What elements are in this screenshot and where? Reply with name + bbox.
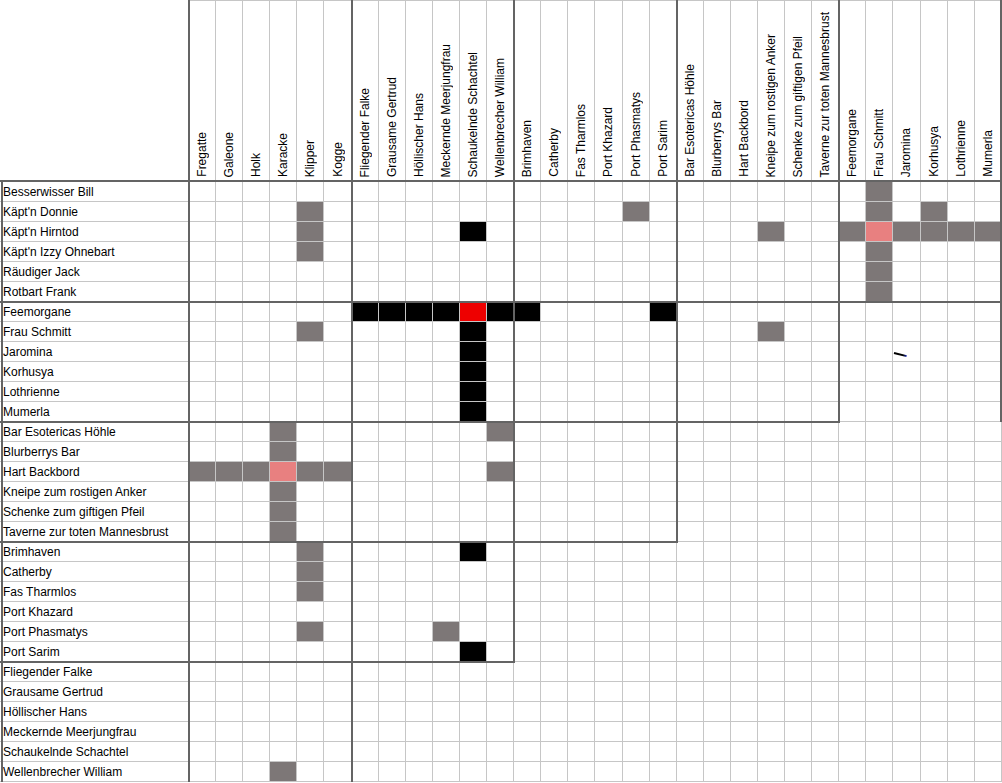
grid-cell[interactable] xyxy=(243,262,270,282)
grid-cell[interactable] xyxy=(352,322,379,342)
grid-cell[interactable] xyxy=(975,302,1002,322)
grid-cell[interactable] xyxy=(839,302,866,322)
grid-cell[interactable] xyxy=(270,662,297,682)
grid-cell[interactable] xyxy=(189,502,216,522)
grid-cell[interactable] xyxy=(921,542,948,562)
grid-cell[interactable] xyxy=(514,182,541,202)
grid-cell[interactable] xyxy=(866,422,893,442)
grid-cell[interactable] xyxy=(379,582,406,602)
grid-cell[interactable] xyxy=(677,502,704,522)
grid-cell[interactable] xyxy=(433,242,460,262)
grid-cell[interactable] xyxy=(406,302,433,322)
grid-cell[interactable] xyxy=(324,302,351,322)
grid-cell[interactable] xyxy=(487,482,514,502)
grid-cell[interactable] xyxy=(406,622,433,642)
grid-cell[interactable] xyxy=(921,182,948,202)
grid-cell[interactable] xyxy=(975,382,1002,402)
grid-cell[interactable] xyxy=(785,522,812,542)
grid-cell[interactable] xyxy=(270,402,297,422)
grid-cell[interactable] xyxy=(487,602,514,622)
grid-cell[interactable] xyxy=(866,222,893,242)
grid-cell[interactable] xyxy=(921,502,948,522)
grid-cell[interactable] xyxy=(677,482,704,502)
grid-cell[interactable] xyxy=(216,402,243,422)
grid-cell[interactable] xyxy=(189,442,216,462)
grid-cell[interactable] xyxy=(324,522,351,542)
grid-cell[interactable] xyxy=(379,182,406,202)
grid-cell[interactable] xyxy=(731,382,758,402)
grid-cell[interactable] xyxy=(487,302,514,322)
grid-cell[interactable] xyxy=(866,382,893,402)
grid-cell[interactable] xyxy=(650,262,677,282)
grid-cell[interactable] xyxy=(921,462,948,482)
grid-cell[interactable] xyxy=(677,602,704,622)
grid-cell[interactable] xyxy=(216,502,243,522)
grid-cell[interactable] xyxy=(487,362,514,382)
grid-cell[interactable] xyxy=(514,702,541,722)
grid-cell[interactable] xyxy=(921,762,948,782)
grid-cell[interactable] xyxy=(243,642,270,662)
grid-cell[interactable] xyxy=(514,582,541,602)
grid-cell[interactable] xyxy=(541,582,568,602)
grid-cell[interactable] xyxy=(243,242,270,262)
grid-cell[interactable] xyxy=(677,322,704,342)
grid-cell[interactable] xyxy=(812,702,839,722)
grid-cell[interactable] xyxy=(433,262,460,282)
grid-cell[interactable] xyxy=(866,202,893,222)
grid-cell[interactable] xyxy=(433,542,460,562)
grid-cell[interactable] xyxy=(948,582,975,602)
grid-cell[interactable] xyxy=(948,602,975,622)
grid-cell[interactable] xyxy=(975,282,1002,302)
grid-cell[interactable] xyxy=(297,342,324,362)
grid-cell[interactable] xyxy=(948,362,975,382)
grid-cell[interactable] xyxy=(893,262,920,282)
grid-cell[interactable] xyxy=(893,482,920,502)
grid-cell[interactable] xyxy=(270,262,297,282)
grid-cell[interactable] xyxy=(758,442,785,462)
grid-cell[interactable] xyxy=(731,762,758,782)
grid-cell[interactable] xyxy=(189,242,216,262)
grid-cell[interactable] xyxy=(623,282,650,302)
grid-cell[interactable] xyxy=(514,282,541,302)
grid-cell[interactable] xyxy=(758,702,785,722)
grid-cell[interactable] xyxy=(379,502,406,522)
grid-cell[interactable] xyxy=(623,662,650,682)
grid-cell[interactable] xyxy=(595,362,622,382)
grid-cell[interactable] xyxy=(704,582,731,602)
grid-cell[interactable] xyxy=(270,582,297,602)
grid-cell[interactable] xyxy=(595,222,622,242)
grid-cell[interactable] xyxy=(839,402,866,422)
grid-cell[interactable] xyxy=(677,682,704,702)
grid-cell[interactable] xyxy=(324,442,351,462)
grid-cell[interactable] xyxy=(352,602,379,622)
grid-cell[interactable] xyxy=(650,682,677,702)
grid-cell[interactable] xyxy=(541,482,568,502)
grid-cell[interactable] xyxy=(541,422,568,442)
grid-cell[interactable] xyxy=(623,202,650,222)
grid-cell[interactable] xyxy=(406,542,433,562)
grid-cell[interactable] xyxy=(812,562,839,582)
grid-cell[interactable] xyxy=(623,442,650,462)
grid-cell[interactable] xyxy=(487,762,514,782)
grid-cell[interactable] xyxy=(324,182,351,202)
grid-cell[interactable] xyxy=(839,242,866,262)
grid-cell[interactable] xyxy=(189,682,216,702)
grid-cell[interactable] xyxy=(650,342,677,362)
grid-cell[interactable] xyxy=(921,242,948,262)
grid-cell[interactable] xyxy=(650,442,677,462)
grid-cell[interactable] xyxy=(406,342,433,362)
grid-cell[interactable] xyxy=(975,702,1002,722)
grid-cell[interactable] xyxy=(677,302,704,322)
grid-cell[interactable] xyxy=(243,482,270,502)
grid-cell[interactable] xyxy=(677,242,704,262)
grid-cell[interactable] xyxy=(893,542,920,562)
grid-cell[interactable] xyxy=(487,262,514,282)
grid-cell[interactable] xyxy=(677,562,704,582)
grid-cell[interactable] xyxy=(677,362,704,382)
grid-cell[interactable] xyxy=(379,742,406,762)
grid-cell[interactable] xyxy=(731,562,758,582)
grid-cell[interactable] xyxy=(595,382,622,402)
grid-cell[interactable] xyxy=(839,462,866,482)
grid-cell[interactable] xyxy=(623,642,650,662)
grid-cell[interactable] xyxy=(758,222,785,242)
grid-cell[interactable] xyxy=(839,422,866,442)
grid-cell[interactable] xyxy=(324,282,351,302)
grid-cell[interactable] xyxy=(758,362,785,382)
grid-cell[interactable] xyxy=(677,462,704,482)
grid-cell[interactable] xyxy=(514,722,541,742)
grid-cell[interactable] xyxy=(785,622,812,642)
grid-cell[interactable] xyxy=(514,362,541,382)
grid-cell[interactable] xyxy=(433,222,460,242)
grid-cell[interactable] xyxy=(433,662,460,682)
grid-cell[interactable] xyxy=(595,302,622,322)
grid-cell[interactable] xyxy=(297,402,324,422)
grid-cell[interactable] xyxy=(460,482,487,502)
grid-cell[interactable] xyxy=(189,302,216,322)
grid-cell[interactable] xyxy=(324,222,351,242)
grid-cell[interactable] xyxy=(650,302,677,322)
grid-cell[interactable] xyxy=(189,362,216,382)
grid-cell[interactable] xyxy=(812,282,839,302)
grid-cell[interactable] xyxy=(324,562,351,582)
grid-cell[interactable] xyxy=(297,622,324,642)
grid-cell[interactable] xyxy=(189,222,216,242)
grid-cell[interactable] xyxy=(704,302,731,322)
grid-cell[interactable] xyxy=(866,282,893,302)
grid-cell[interactable] xyxy=(785,182,812,202)
grid-cell[interactable] xyxy=(595,622,622,642)
grid-cell[interactable] xyxy=(812,502,839,522)
grid-cell[interactable] xyxy=(677,642,704,662)
grid-cell[interactable] xyxy=(866,542,893,562)
grid-cell[interactable] xyxy=(379,242,406,262)
grid-cell[interactable] xyxy=(650,362,677,382)
grid-cell[interactable] xyxy=(812,262,839,282)
grid-cell[interactable] xyxy=(623,722,650,742)
grid-cell[interactable] xyxy=(433,202,460,222)
grid-cell[interactable] xyxy=(758,522,785,542)
grid-cell[interactable] xyxy=(216,682,243,702)
grid-cell[interactable] xyxy=(921,402,948,422)
grid-cell[interactable] xyxy=(324,582,351,602)
grid-cell[interactable] xyxy=(704,642,731,662)
grid-cell[interactable] xyxy=(948,402,975,422)
grid-cell[interactable] xyxy=(893,742,920,762)
grid-cell[interactable] xyxy=(487,282,514,302)
grid-cell[interactable] xyxy=(541,562,568,582)
grid-cell[interactable] xyxy=(297,242,324,262)
grid-cell[interactable] xyxy=(324,342,351,362)
grid-cell[interactable] xyxy=(623,262,650,282)
grid-cell[interactable] xyxy=(189,542,216,562)
grid-cell[interactable] xyxy=(352,742,379,762)
grid-cell[interactable] xyxy=(948,522,975,542)
grid-cell[interactable] xyxy=(352,582,379,602)
grid-cell[interactable] xyxy=(297,562,324,582)
grid-cell[interactable] xyxy=(758,502,785,522)
grid-cell[interactable] xyxy=(975,322,1002,342)
grid-cell[interactable] xyxy=(189,622,216,642)
grid-cell[interactable] xyxy=(893,462,920,482)
grid-cell[interactable] xyxy=(839,702,866,722)
grid-cell[interactable] xyxy=(866,462,893,482)
grid-cell[interactable] xyxy=(921,482,948,502)
grid-cell[interactable] xyxy=(541,642,568,662)
grid-cell[interactable] xyxy=(216,582,243,602)
grid-cell[interactable] xyxy=(568,682,595,702)
grid-cell[interactable] xyxy=(460,622,487,642)
grid-cell[interactable] xyxy=(948,562,975,582)
grid-cell[interactable] xyxy=(324,742,351,762)
grid-cell[interactable] xyxy=(731,702,758,722)
grid-cell[interactable] xyxy=(623,742,650,762)
grid-cell[interactable] xyxy=(568,222,595,242)
grid-cell[interactable] xyxy=(731,462,758,482)
grid-cell[interactable] xyxy=(487,642,514,662)
grid-cell[interactable] xyxy=(243,362,270,382)
grid-cell[interactable] xyxy=(297,702,324,722)
grid-cell[interactable] xyxy=(270,502,297,522)
grid-cell[interactable] xyxy=(568,662,595,682)
grid-cell[interactable] xyxy=(948,682,975,702)
grid-cell[interactable] xyxy=(352,182,379,202)
grid-cell[interactable] xyxy=(623,182,650,202)
grid-cell[interactable] xyxy=(812,662,839,682)
grid-cell[interactable] xyxy=(460,262,487,282)
grid-cell[interactable] xyxy=(731,302,758,322)
grid-cell[interactable] xyxy=(568,302,595,322)
grid-cell[interactable] xyxy=(758,202,785,222)
grid-cell[interactable] xyxy=(704,662,731,682)
grid-cell[interactable] xyxy=(433,522,460,542)
grid-cell[interactable] xyxy=(270,742,297,762)
grid-cell[interactable] xyxy=(623,702,650,722)
grid-cell[interactable] xyxy=(595,202,622,222)
grid-cell[interactable] xyxy=(568,542,595,562)
grid-cell[interactable] xyxy=(487,722,514,742)
grid-cell[interactable] xyxy=(975,622,1002,642)
grid-cell[interactable] xyxy=(189,702,216,722)
grid-cell[interactable] xyxy=(595,262,622,282)
grid-cell[interactable] xyxy=(623,762,650,782)
grid-cell[interactable] xyxy=(352,262,379,282)
grid-cell[interactable] xyxy=(893,682,920,702)
grid-cell[interactable] xyxy=(758,542,785,562)
grid-cell[interactable] xyxy=(270,422,297,442)
grid-cell[interactable] xyxy=(677,402,704,422)
grid-cell[interactable] xyxy=(568,282,595,302)
grid-cell[interactable] xyxy=(948,722,975,742)
grid-cell[interactable] xyxy=(541,462,568,482)
grid-cell[interactable] xyxy=(297,362,324,382)
grid-cell[interactable] xyxy=(677,622,704,642)
grid-cell[interactable] xyxy=(324,542,351,562)
grid-cell[interactable] xyxy=(541,302,568,322)
grid-cell[interactable] xyxy=(595,442,622,462)
grid-cell[interactable] xyxy=(568,482,595,502)
grid-cell[interactable] xyxy=(948,622,975,642)
grid-cell[interactable] xyxy=(541,282,568,302)
grid-cell[interactable] xyxy=(189,562,216,582)
grid-cell[interactable] xyxy=(595,502,622,522)
grid-cell[interactable] xyxy=(406,682,433,702)
grid-cell[interactable] xyxy=(975,362,1002,382)
grid-cell[interactable] xyxy=(379,482,406,502)
grid-cell[interactable] xyxy=(866,602,893,622)
grid-cell[interactable] xyxy=(785,582,812,602)
grid-cell[interactable] xyxy=(406,322,433,342)
grid-cell[interactable] xyxy=(893,662,920,682)
grid-cell[interactable] xyxy=(650,202,677,222)
grid-cell[interactable] xyxy=(460,422,487,442)
grid-cell[interactable] xyxy=(812,302,839,322)
grid-cell[interactable] xyxy=(270,222,297,242)
grid-cell[interactable] xyxy=(623,362,650,382)
grid-cell[interactable] xyxy=(406,402,433,422)
grid-cell[interactable] xyxy=(379,562,406,582)
grid-cell[interactable] xyxy=(514,402,541,422)
grid-cell[interactable] xyxy=(921,622,948,642)
grid-cell[interactable] xyxy=(406,222,433,242)
grid-cell[interactable] xyxy=(460,462,487,482)
grid-cell[interactable] xyxy=(731,182,758,202)
grid-cell[interactable] xyxy=(216,342,243,362)
grid-cell[interactable] xyxy=(677,702,704,722)
grid-cell[interactable] xyxy=(460,242,487,262)
grid-cell[interactable] xyxy=(975,482,1002,502)
grid-cell[interactable] xyxy=(948,702,975,722)
grid-cell[interactable] xyxy=(514,302,541,322)
grid-cell[interactable] xyxy=(866,522,893,542)
grid-cell[interactable] xyxy=(189,482,216,502)
grid-cell[interactable] xyxy=(839,642,866,662)
grid-cell[interactable] xyxy=(758,342,785,362)
grid-cell[interactable] xyxy=(433,682,460,702)
grid-cell[interactable] xyxy=(433,422,460,442)
grid-cell[interactable] xyxy=(189,422,216,442)
grid-cell[interactable] xyxy=(297,642,324,662)
grid-cell[interactable] xyxy=(297,722,324,742)
grid-cell[interactable] xyxy=(785,322,812,342)
grid-cell[interactable] xyxy=(460,522,487,542)
grid-cell[interactable] xyxy=(704,442,731,462)
grid-cell[interactable] xyxy=(189,282,216,302)
grid-cell[interactable] xyxy=(812,622,839,642)
grid-cell[interactable] xyxy=(487,542,514,562)
grid-cell[interactable] xyxy=(568,722,595,742)
grid-cell[interactable] xyxy=(568,262,595,282)
grid-cell[interactable] xyxy=(866,502,893,522)
grid-cell[interactable] xyxy=(243,422,270,442)
grid-cell[interactable] xyxy=(460,502,487,522)
grid-cell[interactable] xyxy=(243,182,270,202)
grid-cell[interactable] xyxy=(731,222,758,242)
grid-cell[interactable] xyxy=(216,382,243,402)
grid-cell[interactable] xyxy=(243,442,270,462)
grid-cell[interactable] xyxy=(704,202,731,222)
grid-cell[interactable] xyxy=(541,682,568,702)
grid-cell[interactable] xyxy=(568,342,595,362)
grid-cell[interactable] xyxy=(595,482,622,502)
grid-cell[interactable] xyxy=(487,742,514,762)
grid-cell[interactable] xyxy=(650,462,677,482)
grid-cell[interactable] xyxy=(623,222,650,242)
grid-cell[interactable] xyxy=(189,642,216,662)
grid-cell[interactable] xyxy=(487,662,514,682)
grid-cell[interactable] xyxy=(731,642,758,662)
grid-cell[interactable] xyxy=(704,402,731,422)
grid-cell[interactable] xyxy=(623,302,650,322)
grid-cell[interactable] xyxy=(297,182,324,202)
grid-cell[interactable] xyxy=(352,662,379,682)
grid-cell[interactable] xyxy=(623,382,650,402)
grid-cell[interactable] xyxy=(433,362,460,382)
grid-cell[interactable] xyxy=(270,202,297,222)
grid-cell[interactable] xyxy=(514,202,541,222)
grid-cell[interactable] xyxy=(650,542,677,562)
grid-cell[interactable] xyxy=(677,222,704,242)
grid-cell[interactable] xyxy=(677,762,704,782)
grid-cell[interactable] xyxy=(704,762,731,782)
grid-cell[interactable] xyxy=(460,382,487,402)
grid-cell[interactable] xyxy=(433,182,460,202)
grid-cell[interactable] xyxy=(948,442,975,462)
grid-cell[interactable] xyxy=(433,602,460,622)
grid-cell[interactable] xyxy=(704,622,731,642)
grid-cell[interactable] xyxy=(487,422,514,442)
grid-cell[interactable] xyxy=(433,342,460,362)
grid-cell[interactable] xyxy=(189,462,216,482)
grid-cell[interactable] xyxy=(270,342,297,362)
grid-cell[interactable] xyxy=(731,542,758,562)
grid-cell[interactable] xyxy=(866,622,893,642)
grid-cell[interactable] xyxy=(406,762,433,782)
grid-cell[interactable] xyxy=(406,602,433,622)
grid-cell[interactable] xyxy=(812,242,839,262)
grid-cell[interactable] xyxy=(623,242,650,262)
grid-cell[interactable] xyxy=(623,462,650,482)
grid-cell[interactable] xyxy=(379,622,406,642)
grid-cell[interactable] xyxy=(460,582,487,602)
grid-cell[interactable] xyxy=(948,502,975,522)
grid-cell[interactable] xyxy=(460,182,487,202)
grid-cell[interactable] xyxy=(270,482,297,502)
